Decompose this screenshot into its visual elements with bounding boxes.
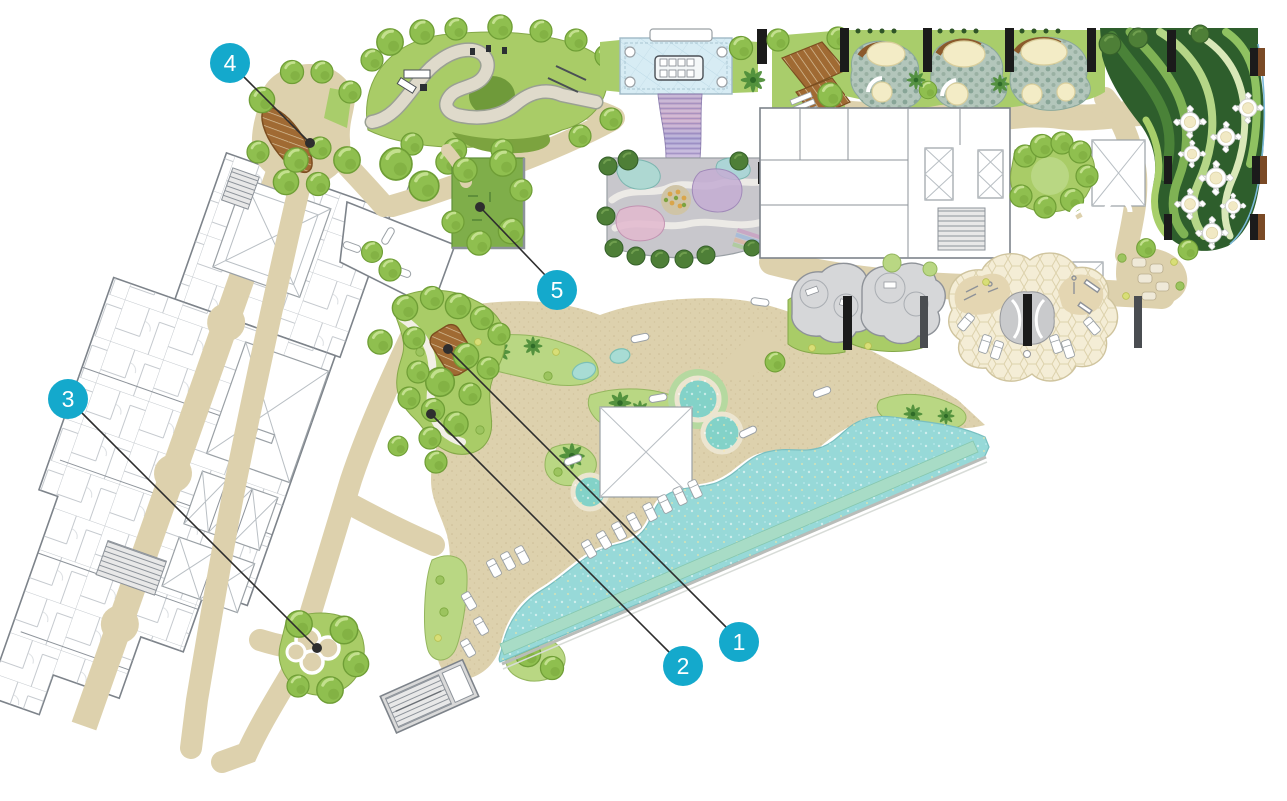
marker-label-2: 2 [677, 653, 690, 679]
cabana-garden-pods [840, 28, 1105, 111]
site-plan-page: 1 2 3 4 5 [0, 0, 1287, 801]
skylight-pool-deck [600, 407, 692, 497]
corridor-pool-link [352, 505, 434, 545]
leader-dot-5 [475, 202, 485, 212]
dining-table [655, 56, 703, 80]
ball-pit [661, 185, 691, 215]
marker-label-4: 4 [224, 50, 237, 76]
pool-stair-ramp [380, 660, 478, 733]
callout-5[interactable]: 5 [475, 202, 577, 310]
skylight-core-right [1092, 140, 1145, 206]
arc-seat [1071, 206, 1095, 218]
garden-pod [1010, 37, 1090, 110]
reading-lawn-garden-5 [442, 150, 532, 255]
marker-label-3: 3 [62, 386, 75, 412]
dining-pavilion [600, 29, 767, 94]
mosaic-cascade-walkway [658, 94, 702, 158]
leader-dot-3 [312, 643, 322, 653]
site-plan: 1 2 3 4 5 [0, 0, 1287, 801]
terrace-center-sculpture [1000, 292, 1054, 346]
kids-playground [597, 150, 772, 268]
residential-building-wing [0, 131, 455, 769]
leader-dot-2 [426, 409, 436, 419]
marker-label-1: 1 [733, 629, 746, 655]
leader-dot-1 [443, 344, 453, 354]
marker-label-5: 5 [551, 277, 564, 303]
pavilion-bench [650, 29, 712, 41]
leader-dot-4 [305, 138, 315, 148]
core-stair [938, 208, 985, 250]
fitness-terrace [920, 253, 1142, 381]
